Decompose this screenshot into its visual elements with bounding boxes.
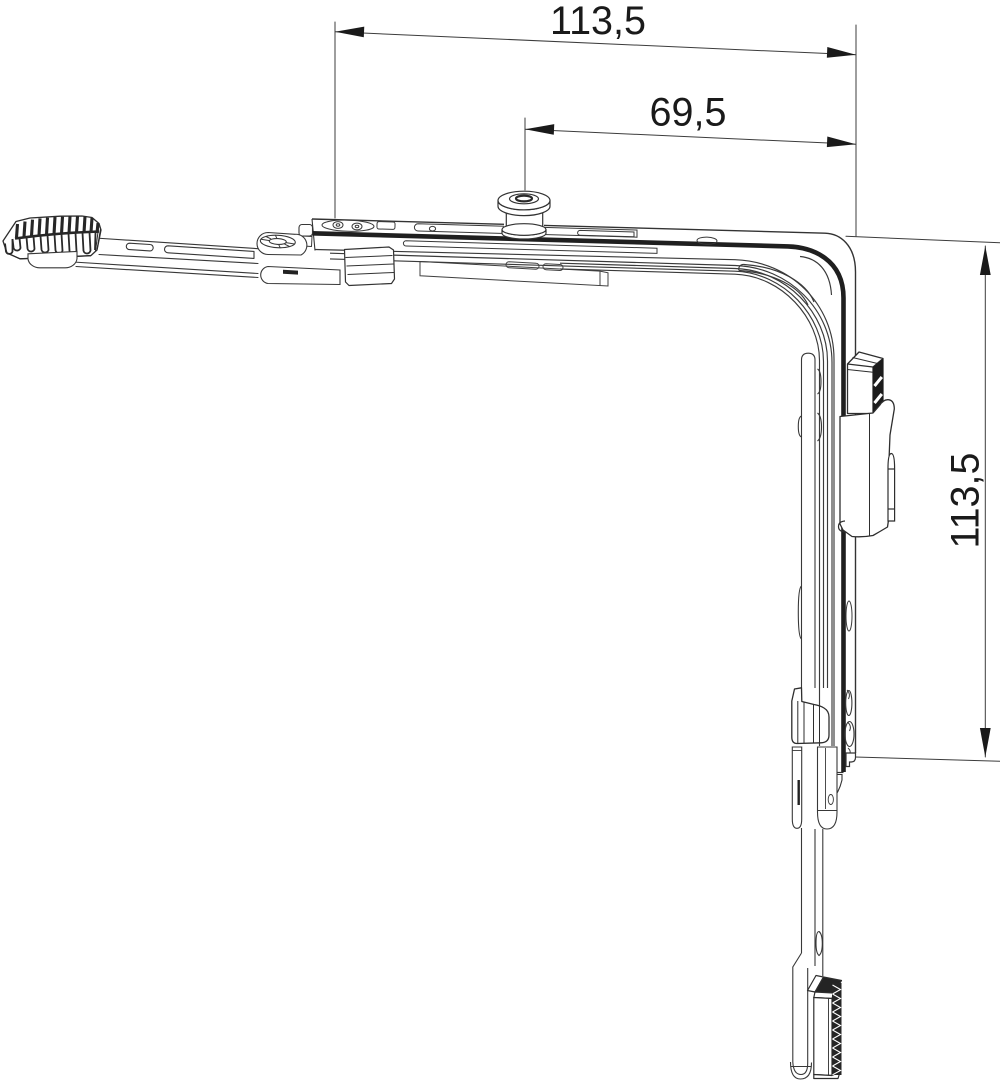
svg-text:113,5: 113,5 xyxy=(944,453,988,549)
svg-text:69,5: 69,5 xyxy=(650,91,727,135)
svg-text:113,5: 113,5 xyxy=(550,0,646,43)
